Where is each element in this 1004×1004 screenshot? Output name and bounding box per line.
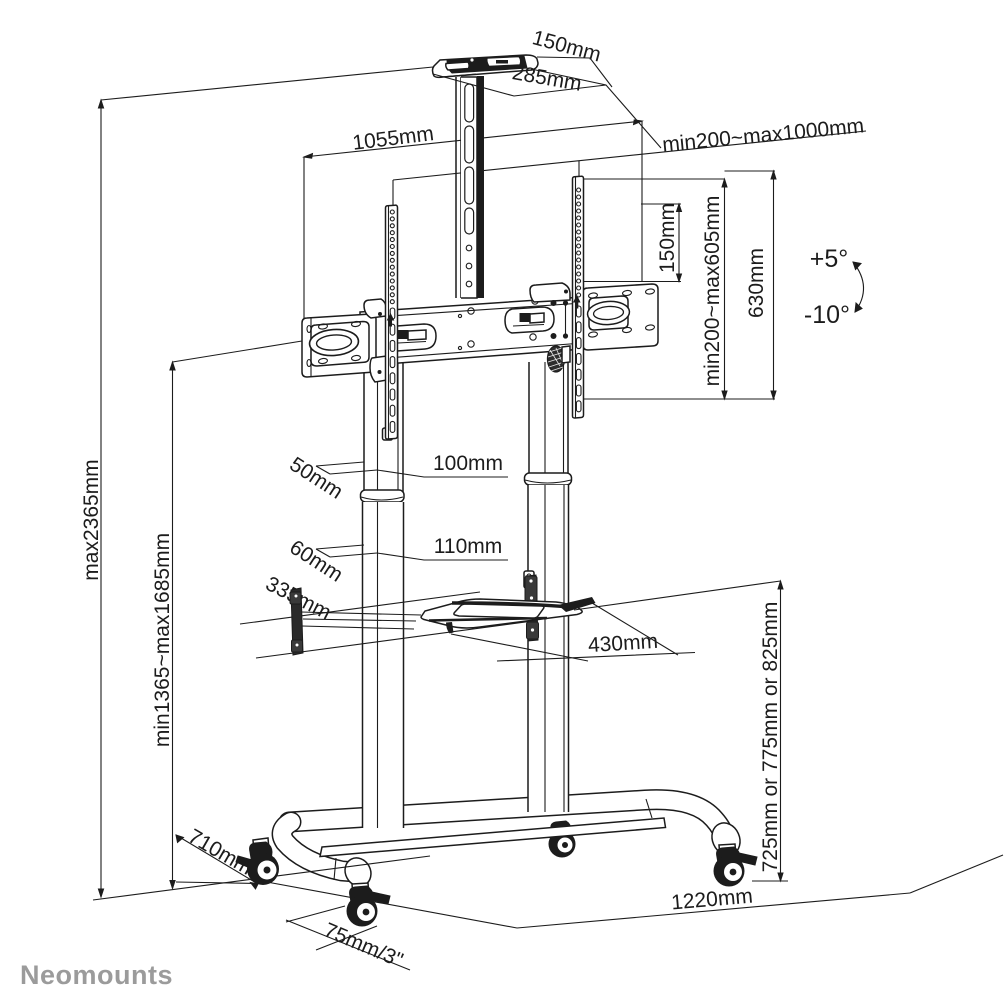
- svg-text:max2365mm: max2365mm: [80, 459, 103, 580]
- svg-text:150mm: 150mm: [656, 203, 679, 273]
- svg-text:630mm: 630mm: [745, 248, 768, 318]
- svg-text:430mm: 430mm: [587, 630, 658, 657]
- svg-text:110mm: 110mm: [434, 535, 502, 558]
- svg-text:+5°: +5°: [810, 245, 849, 273]
- svg-text:100mm: 100mm: [433, 452, 503, 475]
- svg-text:min200~max605mm: min200~max605mm: [701, 196, 724, 387]
- svg-text:Neomounts: Neomounts: [20, 960, 173, 990]
- svg-text:725mm or 775mm or 825mm: 725mm or 775mm or 825mm: [759, 602, 782, 873]
- svg-text:-10°: -10°: [804, 301, 850, 329]
- svg-text:min1365~max1685mm: min1365~max1685mm: [151, 533, 174, 747]
